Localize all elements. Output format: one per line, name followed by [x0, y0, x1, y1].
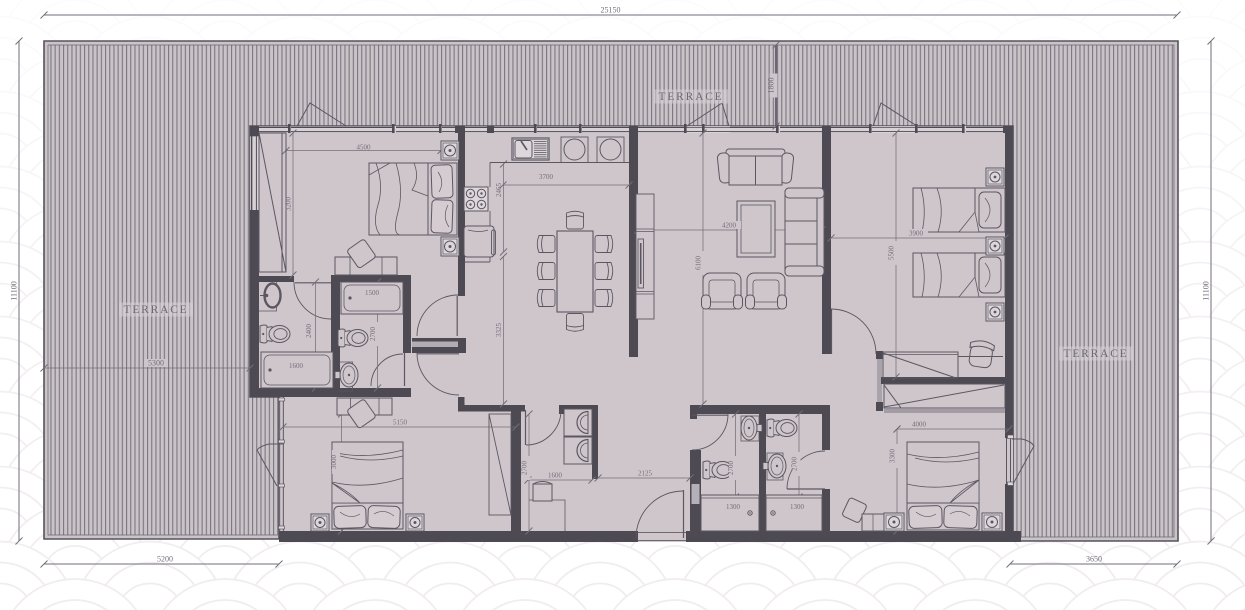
svg-text:4200: 4200 — [722, 222, 737, 230]
svg-text:TERRACE: TERRACE — [1064, 348, 1129, 360]
svg-text:2700: 2700 — [369, 327, 377, 342]
svg-text:2700: 2700 — [791, 457, 799, 472]
svg-text:3900: 3900 — [909, 230, 924, 238]
svg-text:3000: 3000 — [330, 455, 338, 470]
svg-text:1600: 1600 — [289, 362, 304, 370]
svg-text:2700: 2700 — [727, 461, 735, 476]
svg-text:6100: 6100 — [695, 256, 703, 271]
svg-text:11100: 11100 — [10, 281, 19, 300]
svg-text:1500: 1500 — [365, 289, 380, 297]
svg-text:5500: 5500 — [888, 246, 896, 261]
svg-text:3200: 3200 — [285, 197, 293, 212]
svg-text:5150: 5150 — [393, 419, 408, 427]
svg-text:2465: 2465 — [495, 183, 503, 198]
svg-text:2400: 2400 — [305, 324, 313, 339]
svg-text:3325: 3325 — [495, 323, 503, 338]
svg-text:5200: 5200 — [157, 555, 173, 564]
svg-text:1300: 1300 — [790, 503, 805, 511]
svg-text:4000: 4000 — [912, 421, 927, 429]
svg-text:5300: 5300 — [148, 359, 164, 368]
svg-text:11100: 11100 — [1202, 281, 1211, 300]
svg-text:25150: 25150 — [601, 6, 621, 15]
svg-text:1800: 1800 — [767, 78, 776, 94]
svg-text:3650: 3650 — [1086, 555, 1102, 564]
svg-text:4500: 4500 — [357, 144, 372, 152]
svg-text:3300: 3300 — [889, 449, 897, 464]
svg-text:TERRACE: TERRACE — [659, 91, 724, 103]
svg-text:2700: 2700 — [521, 461, 529, 476]
svg-text:1300: 1300 — [726, 503, 741, 511]
svg-text:TERRACE: TERRACE — [124, 304, 189, 316]
svg-text:2125: 2125 — [638, 470, 653, 478]
svg-text:3700: 3700 — [539, 173, 554, 181]
svg-text:1600: 1600 — [548, 472, 563, 480]
